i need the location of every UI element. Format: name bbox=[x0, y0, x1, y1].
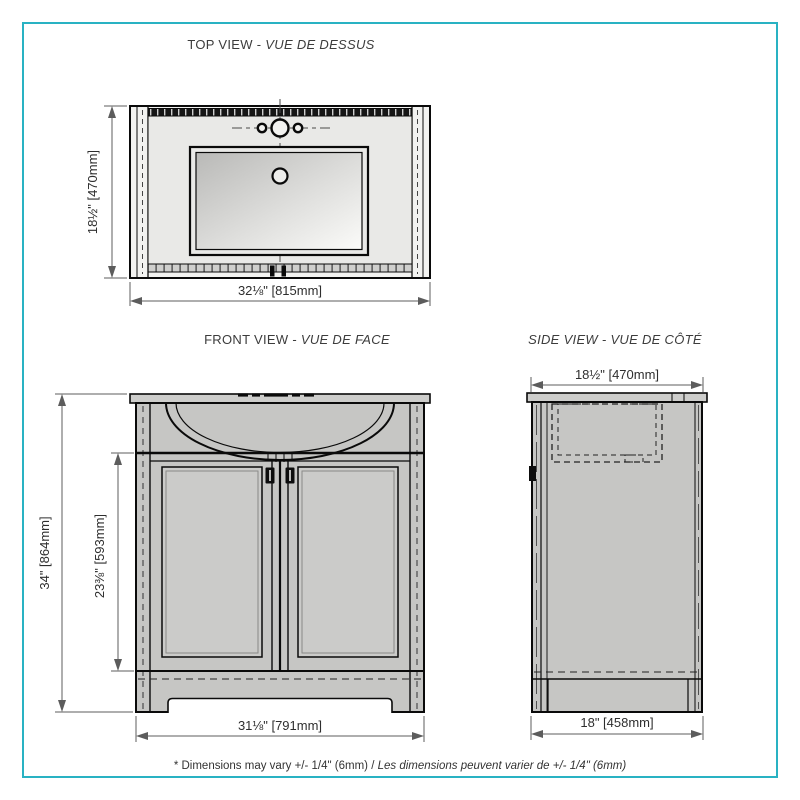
top-view-depth-dimension bbox=[104, 106, 127, 278]
drain-hole bbox=[273, 169, 288, 184]
footer-note-fr: Les dimensions peuvent varier de +/- 1/4… bbox=[378, 760, 627, 772]
faucet-hole-left bbox=[258, 124, 266, 132]
front-view-door-height-dimension bbox=[111, 453, 134, 671]
side-counter-slab bbox=[527, 393, 707, 402]
front-view-width-label: 31⅛" [791mm] bbox=[238, 718, 322, 733]
faucet-hole-center bbox=[272, 120, 289, 137]
left-door-panel bbox=[162, 467, 262, 657]
drawing-sheet: TOP VIEW - VUE DE DESSUS FRONT VIEW - VU… bbox=[0, 0, 800, 800]
right-door-handle bbox=[286, 468, 295, 484]
front-view-door-height-label: 23⅜" [593mm] bbox=[92, 514, 107, 598]
door-hinge bbox=[529, 466, 536, 481]
right-door-panel bbox=[298, 467, 398, 657]
top-view-depth-label: 18½" [470mm] bbox=[85, 150, 100, 234]
top-view-width-label: 32⅛" [815mm] bbox=[238, 283, 322, 298]
top-view-drawing: 18½" [470mm] 32⅛" [815mm] bbox=[85, 99, 430, 306]
side-view-top-width-label: 18½" [470mm] bbox=[575, 367, 659, 382]
technical-drawing: 18½" [470mm] 32⅛" [815mm] bbox=[0, 0, 800, 800]
toe-kick-cutout bbox=[168, 699, 392, 715]
front-view-height-label: 34" [864mm] bbox=[37, 516, 52, 589]
sink-basin bbox=[196, 153, 362, 250]
left-door-handle bbox=[266, 468, 275, 484]
footer-note-en: * Dimensions may vary +/- 1/4" (6mm) / bbox=[174, 760, 378, 772]
side-view-drawing: 18½" [470mm] bbox=[527, 367, 707, 740]
front-view-drawing: 34" [864mm] 23⅜" [593mm] 31⅛" [791mm] bbox=[37, 393, 430, 742]
front-edge-band bbox=[148, 264, 412, 272]
faucet-hole-right bbox=[294, 124, 302, 132]
side-view-bottom-width-label: 18" [458mm] bbox=[580, 715, 653, 730]
footer-note: * Dimensions may vary +/- 1/4" (6mm) / L… bbox=[22, 760, 778, 772]
